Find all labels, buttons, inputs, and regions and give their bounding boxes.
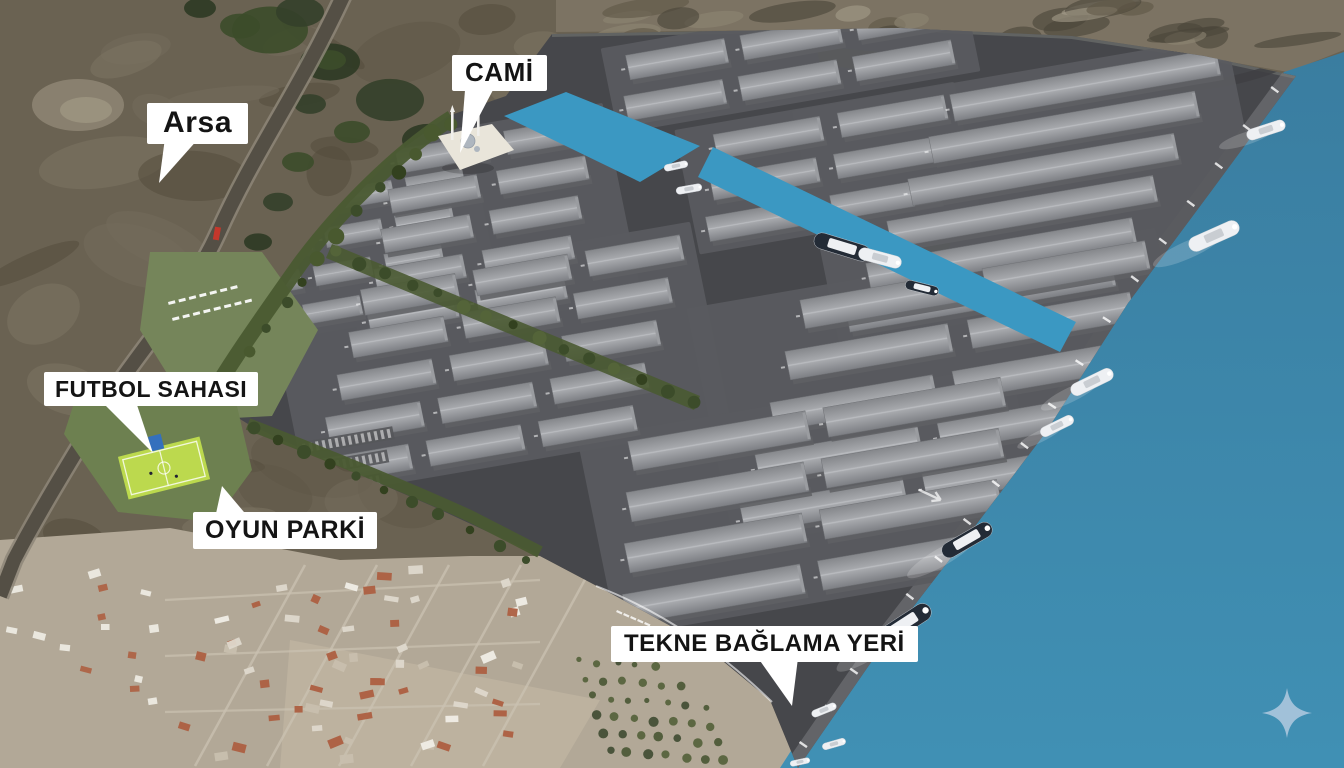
label-futbol-sahasi: FUTBOL SAHASI [44, 372, 258, 406]
label-cami: CAMİ [452, 55, 547, 91]
label-tekne-baglama-yeri: TEKNE BAĞLAMA YERİ [611, 626, 918, 662]
label-oyun-parki: OYUN PARKİ [193, 512, 377, 549]
minaret [451, 112, 454, 140]
site-plan-rendering: Arsa CAMİ FUTBOL SAHASI OYUN PARKİ TEKNE… [0, 0, 1344, 768]
label-arsa: Arsa [147, 103, 248, 144]
